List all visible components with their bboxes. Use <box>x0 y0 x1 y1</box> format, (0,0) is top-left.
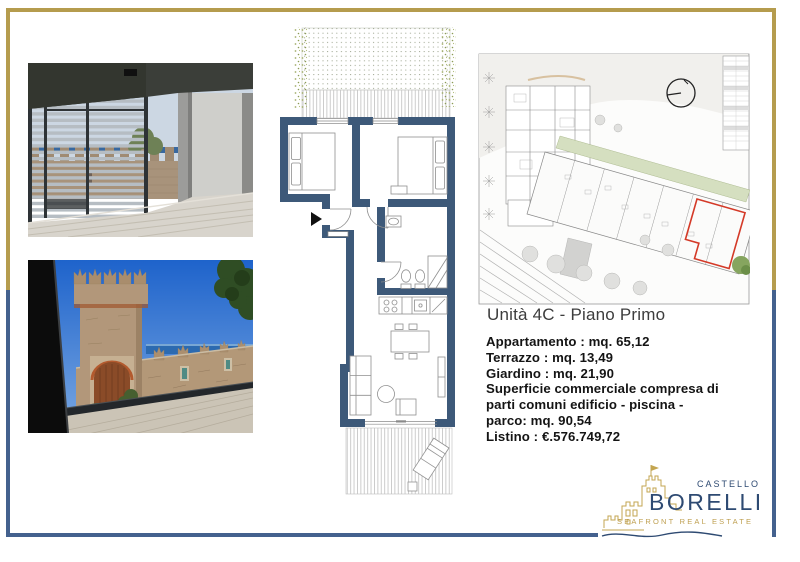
detail-line: Terrazzo : mq. 13,49 <box>486 350 786 366</box>
site-plan-drawing <box>478 53 750 305</box>
brand-logo: CASTELLO BORELLI SEAFRONT REAL ESTATE <box>600 450 778 546</box>
unit-details: Appartamento : mq. 65,12 Terrazzo : mq. … <box>486 334 786 445</box>
frame-top-gold <box>6 8 776 12</box>
entrance-arrow-icon <box>311 212 322 226</box>
detail-line: Listino : €.576.749,72 <box>486 429 786 445</box>
detail-line: Appartamento : mq. 65,12 <box>486 334 786 350</box>
floor-plan-drawing <box>264 22 474 514</box>
photo-terrace-interior <box>28 63 253 237</box>
detail-line: parti comuni edificio - piscina - <box>486 397 786 413</box>
listing-sheet: Unità 4C - Piano Primo Appartamento : mq… <box>0 0 800 562</box>
frame-right-gold <box>772 8 776 290</box>
frame-bottom-blue <box>6 533 598 537</box>
frame-left-gold <box>6 8 10 290</box>
detail-line: Giardino : mq. 21,90 <box>486 366 786 382</box>
brand-borelli: BORELLI <box>649 489 764 516</box>
logo-wave <box>602 532 722 536</box>
frame-left-blue <box>6 290 10 537</box>
photo-castle-walls <box>28 260 253 433</box>
unit-title: Unità 4C - Piano Primo <box>487 305 665 325</box>
detail-line: Superficie commerciale compresa di <box>486 381 786 397</box>
detail-line: parco: mq. 90,54 <box>486 413 786 429</box>
brand-tagline: SEAFRONT REAL ESTATE <box>617 517 753 526</box>
brand-castello: CASTELLO <box>697 479 760 489</box>
site-plan-table <box>723 56 749 150</box>
